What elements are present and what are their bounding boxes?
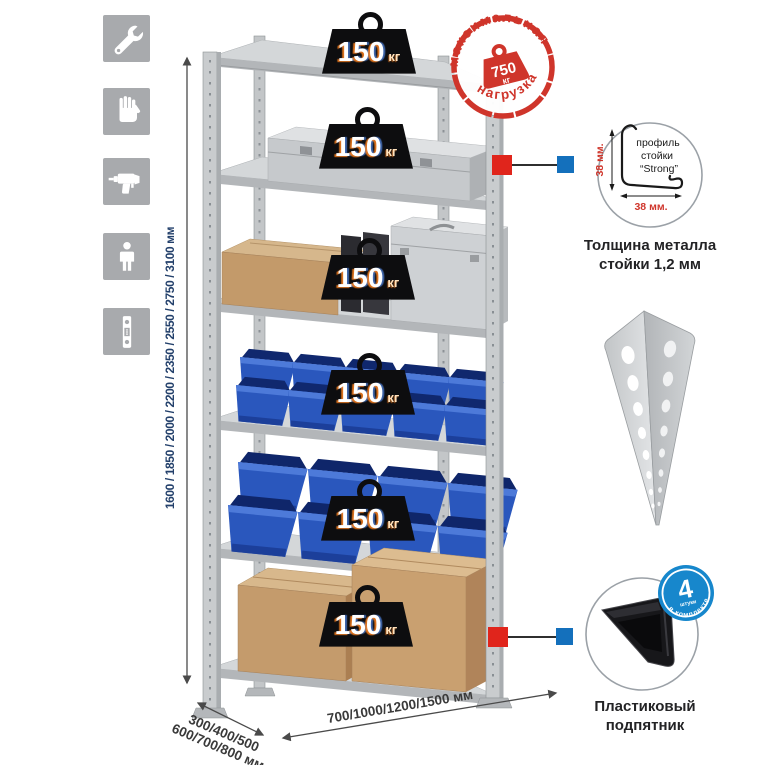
metal-thickness-caption: Толщина металла стойки 1,2 мм [570,236,730,274]
load-value: 150 [337,503,384,535]
load-unit: кг [387,516,399,531]
shelf-load-badge: 150 кг [321,238,417,301]
profile-dim-vertical-label: 38 мм. [594,143,606,176]
weight-body: 150 кг [319,124,413,170]
upright-post-image [598,303,706,535]
metal-thickness-line1: Толщина металла [570,236,730,255]
callout-line-bottom [508,636,556,638]
plastic-foot-caption: Пластиковый подпятник [565,697,725,735]
load-value: 150 [337,377,384,409]
callout-marker-red-top [492,155,512,175]
shelf-load-badge: 150 кг [321,353,417,416]
shelving-product-infographic: 1600 / 1850 / 2000 / 2200 / 2350 / 2550 … [0,0,765,765]
profile-label-line3: “Strong” [640,163,678,175]
shelf-load-badge: 150 кг [319,107,415,170]
load-unit: кг [388,49,400,64]
callout-marker-blue-bottom [556,628,573,645]
callout-line-top [512,164,557,166]
weight-body: 150 кг [321,496,415,542]
height-dimension-label: 1600 / 1850 / 2000 / 2200 / 2350 / 2550 … [163,198,181,538]
callout-marker-red-bottom [488,627,508,647]
max-load-stamp: максимальная нагрузка 750 кг [450,14,556,120]
plastic-foot-line2: подпятник [565,716,725,735]
callout-marker-blue-top [557,156,574,173]
load-value: 150 [338,36,385,68]
quantity-badge: 4 штуки в комплекте [655,562,717,624]
load-unit: кг [387,275,399,290]
weight-body: 150 кг [321,255,415,301]
weight-body: 150 кг [322,29,416,75]
shelf-load-badge: 150 кг [319,585,415,648]
load-unit: кг [385,622,397,637]
profile-dim-horizontal-label: 38 мм. [634,201,667,213]
shelf-load-badge: 150 кг [322,12,418,75]
profile-detail-circle: 38 мм. 38 мм. профиль стойки “Strong” [590,115,710,235]
load-value: 150 [335,609,382,641]
weight-body: 150 кг [319,602,413,648]
weight-body: 150 кг [321,370,415,416]
load-unit: кг [385,144,397,159]
load-value: 150 [335,131,382,163]
load-unit: кг [387,390,399,405]
profile-label-line1: профиль [636,137,680,149]
shelf-load-badge: 150 кг [321,479,417,542]
metal-thickness-line2: стойки 1,2 мм [570,255,730,274]
plastic-foot-line1: Пластиковый [565,697,725,716]
profile-label-line2: стойки [641,150,673,162]
load-value: 150 [337,262,384,294]
